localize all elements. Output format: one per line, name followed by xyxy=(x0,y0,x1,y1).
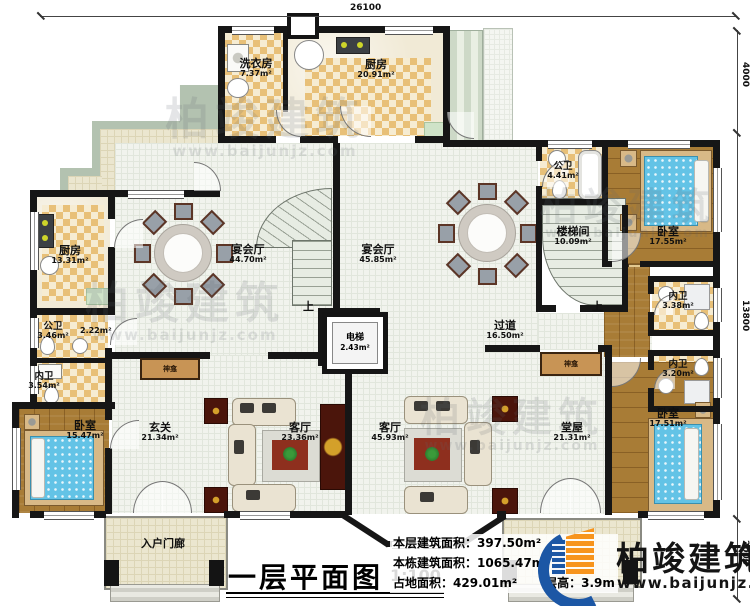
spiral-stair-flight xyxy=(292,240,332,306)
window xyxy=(12,428,21,490)
wall xyxy=(536,147,542,161)
dining-table-top xyxy=(163,233,203,273)
wall xyxy=(30,358,110,363)
room-label-kitchen-left: 厨房13.31m² xyxy=(40,245,100,265)
window xyxy=(548,140,592,149)
wall xyxy=(536,205,542,310)
dining-table xyxy=(458,204,516,262)
dimension-right-middle: 13800 xyxy=(738,300,750,331)
room-label-bath-se: 内卫3.20m² xyxy=(652,360,704,378)
room-label-foyer: 玄关21.34m² xyxy=(130,422,190,442)
terrace-open xyxy=(483,28,513,144)
chair xyxy=(174,288,193,305)
wall xyxy=(648,350,718,356)
room-label-bath-ne: 内卫3.38m² xyxy=(652,292,704,310)
window xyxy=(240,511,290,520)
sofa xyxy=(228,424,256,486)
window xyxy=(713,358,722,398)
room-label-bath-inner-left: 内卫3.54m² xyxy=(18,372,70,390)
sofa-cushion xyxy=(234,440,244,454)
porch-left-post xyxy=(104,560,119,586)
room-label-bedroom-sw: 卧室15.47m² xyxy=(55,420,115,440)
shower xyxy=(684,380,710,404)
patio-floor-step xyxy=(68,176,102,191)
wall xyxy=(300,136,338,143)
brand-website: www.baijunjz.com xyxy=(617,574,750,592)
wall xyxy=(218,136,276,143)
room-label-banquet-right: 宴会厅45.85m² xyxy=(347,244,409,264)
kitchen-sink xyxy=(294,40,324,70)
room-label-stairwell: 楼梯间10.09m² xyxy=(543,226,603,246)
laundry-sink xyxy=(227,78,249,98)
wall xyxy=(218,26,225,143)
stat-label: 本层建筑面积： xyxy=(393,534,477,554)
stat-label: 占地面积： xyxy=(393,574,453,594)
stove xyxy=(336,37,370,54)
plan-title: 一层平面图 xyxy=(228,556,383,596)
wall xyxy=(30,402,115,409)
bed-pillow xyxy=(31,438,45,498)
kitchen-mat xyxy=(86,288,110,305)
wall xyxy=(640,261,720,267)
wall xyxy=(30,190,220,197)
dimension-top-value: 26100 xyxy=(348,3,383,13)
speaker-cabinet xyxy=(204,398,228,424)
wall xyxy=(497,511,506,518)
stat-value: 429.01m² xyxy=(453,574,517,594)
wall xyxy=(580,305,628,312)
chair xyxy=(174,203,193,220)
room-label-bath-public-left: 公卫3.46m² xyxy=(28,322,78,340)
room-label-bedroom-se: 卧室17.51m² xyxy=(638,408,698,428)
elevator-car: 电梯 2.43m² xyxy=(332,322,378,364)
closet-area-label: 2.22m² xyxy=(80,326,112,335)
speaker-cabinet xyxy=(492,396,518,422)
sofa-cushion xyxy=(246,490,260,500)
wall xyxy=(108,195,115,219)
window xyxy=(628,140,690,149)
wall xyxy=(648,388,654,406)
nightstand xyxy=(24,414,40,430)
dining-table-top xyxy=(467,213,507,253)
sofa-cushion xyxy=(470,440,480,454)
wall xyxy=(602,261,612,267)
wall xyxy=(105,448,112,514)
sofa xyxy=(404,486,468,514)
wall xyxy=(598,345,612,352)
elevator-area: 2.43m² xyxy=(340,344,370,352)
bed-pillow xyxy=(694,160,709,222)
room-label-kitchen-top: 厨房20.91m² xyxy=(346,59,406,79)
stove xyxy=(37,214,54,248)
room-label-living-right: 客厅45.93m² xyxy=(360,422,420,442)
wall xyxy=(105,348,112,420)
shrine-table: 神龛 xyxy=(140,358,200,380)
wall xyxy=(108,247,115,312)
window xyxy=(44,511,94,520)
stairs-up-label: 上 xyxy=(592,298,603,314)
window xyxy=(232,26,274,35)
sofa xyxy=(464,422,492,486)
chair xyxy=(478,183,497,200)
burner xyxy=(42,220,48,226)
bed-pillow xyxy=(684,428,699,500)
elevator-shaft: 电梯 2.43m² xyxy=(322,312,388,374)
bath-sink xyxy=(72,338,88,354)
window xyxy=(128,190,184,199)
dining-table xyxy=(154,224,212,282)
dimension-right-upper: 4000 xyxy=(738,62,750,87)
sofa-cushion xyxy=(420,492,434,502)
bed-mattress xyxy=(644,156,698,226)
wall xyxy=(443,26,450,147)
toilet xyxy=(694,312,709,330)
dimension-line-top xyxy=(40,16,737,17)
plant xyxy=(282,446,298,462)
sofa-cushion xyxy=(262,403,276,413)
title-underline xyxy=(226,597,444,598)
window xyxy=(713,288,722,322)
tv-cabinet xyxy=(320,404,346,490)
window xyxy=(385,26,433,35)
room-label-main-hall: 堂屋21.31m² xyxy=(542,422,602,442)
brand-name: 柏竣建筑 xyxy=(616,532,750,580)
window xyxy=(648,511,704,520)
nightstand xyxy=(620,150,637,167)
wall xyxy=(648,330,718,336)
room-label-living-left: 客厅23.36m² xyxy=(270,422,330,442)
porch-left-steps xyxy=(110,584,220,602)
plant xyxy=(424,446,440,462)
shrine-label: 神龛 xyxy=(163,364,177,374)
wall xyxy=(602,147,608,267)
chair xyxy=(478,268,497,285)
burner xyxy=(357,42,363,48)
room-label-corridor: 过道16.50m² xyxy=(475,320,535,340)
stat-label: 本栋建筑面积： xyxy=(393,554,477,574)
room-label-laundry: 洗衣房7.37m² xyxy=(226,58,286,78)
burner xyxy=(42,235,48,241)
speaker-cabinet xyxy=(204,487,228,513)
shrine-table: 神龛 xyxy=(540,352,602,376)
sofa-cushion xyxy=(414,401,428,411)
chair xyxy=(520,224,537,243)
wall xyxy=(345,352,352,515)
wall xyxy=(536,199,608,205)
wall xyxy=(333,143,340,315)
sofa-cushion xyxy=(240,403,254,413)
window xyxy=(713,424,722,500)
wall xyxy=(30,308,115,315)
room-label-bath-public-right: 公卫4.41m² xyxy=(543,162,583,180)
wall xyxy=(485,345,540,352)
porch-left-post xyxy=(209,560,224,586)
wall xyxy=(536,305,556,312)
porch-label-left: 入户门廊 xyxy=(123,538,203,550)
chair xyxy=(438,224,455,243)
sofa xyxy=(232,484,296,512)
stat-value: 397.50m² xyxy=(477,534,541,554)
shrine-label: 神龛 xyxy=(564,359,578,369)
stairs-up-label: 上 xyxy=(303,298,314,314)
sofa-cushion xyxy=(436,401,450,411)
wall xyxy=(605,352,612,515)
window xyxy=(713,168,722,232)
room-label-bedroom-ne: 卧室17.55m² xyxy=(638,226,698,246)
wall xyxy=(342,513,391,547)
brand-logo-building-blue xyxy=(552,540,565,576)
room-label-banquet-left: 宴会厅44.70m² xyxy=(217,244,279,264)
window xyxy=(30,212,39,270)
burner xyxy=(341,42,347,48)
wall xyxy=(648,276,718,282)
floor-plan-canvas: 电梯 2.43m² xyxy=(0,0,750,606)
